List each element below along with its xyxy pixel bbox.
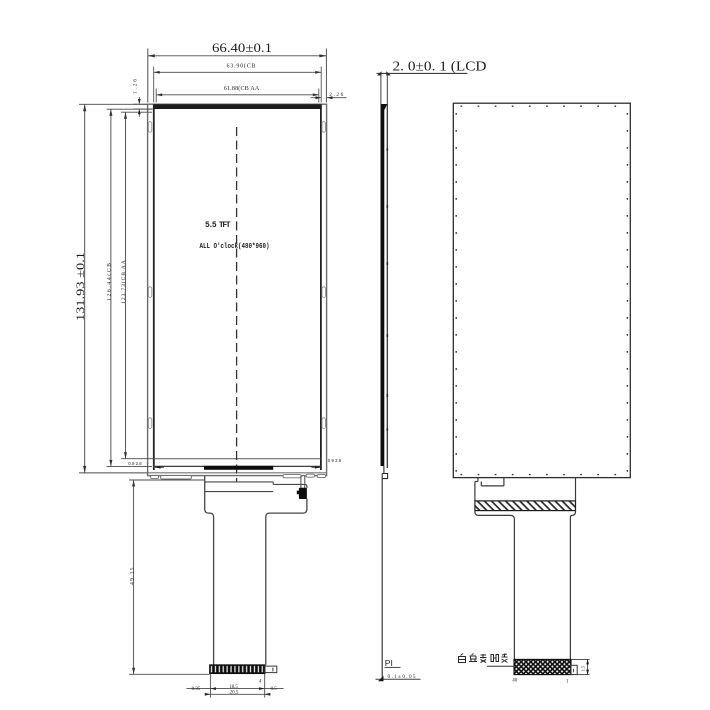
svg-text:61.88(CB AA: 61.88(CB AA — [224, 85, 260, 92]
svg-text:40: 40 — [512, 679, 518, 684]
svg-text:66.40±0.1: 66.40±0.1 — [212, 41, 272, 55]
svg-text:2.26: 2.26 — [329, 92, 343, 98]
svg-text:ALL O'clock(480*960): ALL O'clock(480*960) — [200, 243, 270, 251]
svg-text:1.5: 1.5 — [581, 665, 586, 671]
svg-text:0.9 2.6: 0.9 2.6 — [128, 461, 142, 466]
svg-text:63.90(CB: 63.90(CB — [227, 62, 256, 69]
svg-text:0.35: 0.35 — [192, 687, 201, 692]
svg-text:0.5: 0.5 — [271, 687, 278, 692]
svg-text:20.5: 20.5 — [230, 691, 239, 696]
svg-text:1.26: 1.26 — [133, 79, 139, 94]
svg-text:5.5 TFT: 5.5 TFT — [205, 221, 231, 230]
svg-text:123.73(CB AA: 123.73(CB AA — [120, 260, 127, 304]
svg-text:PI: PI — [385, 658, 393, 668]
svg-text:2. 0±0. 1 (LCD: 2. 0±0. 1 (LCD — [393, 58, 487, 73]
svg-text:1: 1 — [566, 680, 569, 685]
svg-text:0.9 2.6: 0.9 2.6 — [328, 458, 342, 463]
svg-text:131.93 ±0.1: 131.93 ±0.1 — [73, 252, 87, 321]
svg-text:49.15: 49.15 — [129, 567, 135, 585]
svg-text:18.5: 18.5 — [229, 685, 238, 690]
svg-text:126.44(CB: 126.44(CB — [106, 263, 113, 301]
svg-text:4: 4 — [259, 680, 262, 685]
